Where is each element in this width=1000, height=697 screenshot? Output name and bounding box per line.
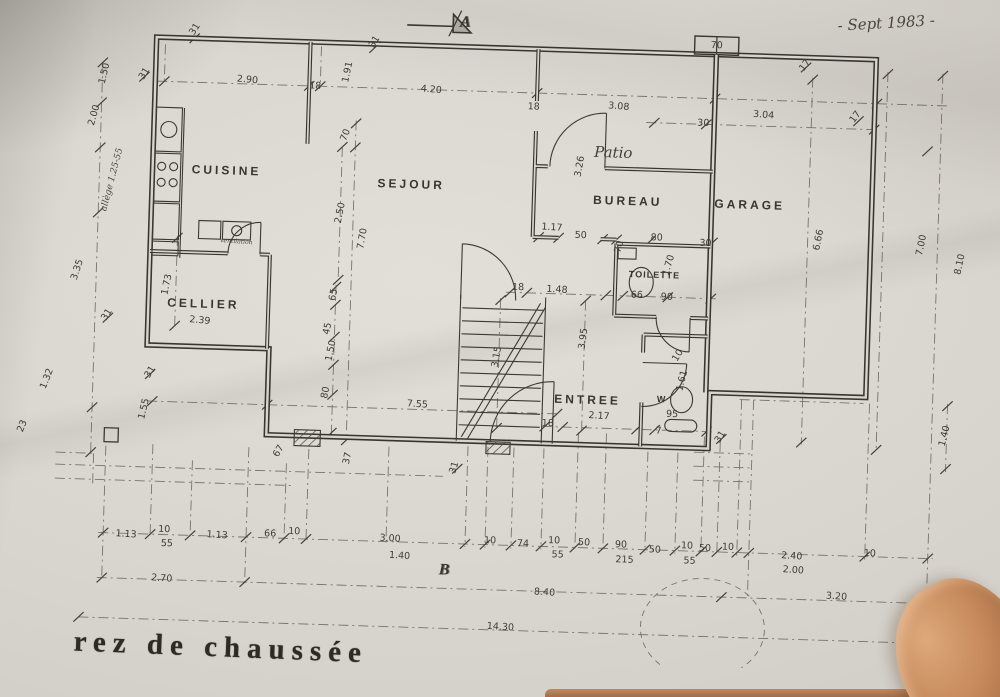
dimension-label: 1.48 (546, 284, 568, 296)
dimension-label: 1.17 (541, 221, 563, 233)
extension-lines (49, 38, 958, 675)
dimension-label: 90 (615, 539, 627, 550)
dimension-label: 3.20 (826, 591, 848, 603)
dimension-label: 10 (681, 540, 693, 551)
room-label-wc: W (657, 394, 667, 404)
dimension-label: 1.13 (115, 528, 137, 540)
dimension-label: 10 (864, 548, 876, 559)
dimension-label: 14.30 (486, 621, 514, 634)
dimension-label: 4.20 (420, 83, 442, 96)
paper-sheet: CUISINESEJOURBUREAUGARAGECELLIERENTREETO… (0, 0, 1000, 697)
room-label-garage: GARAGE (714, 197, 785, 213)
dimension-label: 18 (527, 101, 539, 112)
dimension-label: 18 (542, 418, 554, 429)
section-marker-b: B (438, 561, 449, 579)
floor-plan: CUISINESEJOURBUREAUGARAGECELLIERENTREETO… (0, 0, 1000, 676)
dimension-label: 2.39 (189, 314, 211, 327)
dimension-label: 30 (699, 238, 711, 249)
section-marker-a: A (460, 14, 471, 32)
dimension-label: 66 (264, 528, 276, 539)
dimension-label: 55 (683, 555, 695, 566)
staircase (456, 295, 546, 444)
dimension-label: 1.40 (389, 550, 411, 562)
dimension-label: 30 (697, 118, 709, 129)
dimension-label: 10 (548, 535, 560, 546)
dimension-label: 2.17 (588, 410, 610, 422)
floor-plan-linework (0, 0, 1000, 676)
room-label-patio: Patio (594, 143, 633, 162)
dimension-label: 50 (699, 543, 711, 554)
dimension-label: 2.40 (781, 550, 803, 562)
dimension-label: 74 (517, 538, 529, 549)
room-label-sejour: SEJOUR (377, 176, 445, 192)
dimension-label: 8.40 (534, 586, 556, 598)
dimension-label: 10 (158, 524, 170, 535)
dimension-label: 215 (615, 554, 633, 566)
dimension-label: 55 (551, 549, 563, 560)
dimension-label: 50 (578, 537, 590, 548)
dimension-label: 3.00 (379, 532, 401, 544)
dimension-label: 3.08 (608, 100, 630, 113)
dimension-label: 7.55 (406, 398, 428, 410)
dimension-label: 50 (574, 230, 586, 241)
room-label-cuisine: CUISINE (192, 162, 262, 178)
dimension-label: 18 (309, 80, 321, 91)
dimension-label: 90 (661, 292, 673, 303)
dimension-label: 2.70 (151, 572, 173, 584)
room-label-cellier: CELLIER (167, 296, 240, 312)
photo-of-floor-plan: CUISINESEJOURBUREAUGARAGECELLIERENTREETO… (0, 0, 1000, 697)
dimension-label: 50 (649, 544, 661, 555)
dimension-label: 1.13 (206, 529, 228, 541)
dimension-label: 3.04 (753, 109, 775, 122)
dimension-label: 10 (722, 542, 734, 553)
dimension-label: 95 (666, 409, 678, 420)
dimension-label: 80 (650, 232, 662, 243)
room-label-entree: ENTREE (554, 392, 621, 408)
dimension-label: 18 (512, 282, 524, 293)
dimension-label: 10 (484, 535, 496, 546)
dimension-label: 10 (288, 526, 300, 537)
dimension-label: 70 (711, 40, 723, 51)
dimension-label: 7 (655, 425, 661, 436)
dimension-label: 2.90 (236, 74, 258, 87)
room-label-bureau: BUREAU (593, 193, 663, 209)
dimension-label: 55 (161, 538, 173, 549)
dimension-label: 2.00 (782, 564, 804, 576)
dimension-label: 66 (631, 290, 643, 301)
